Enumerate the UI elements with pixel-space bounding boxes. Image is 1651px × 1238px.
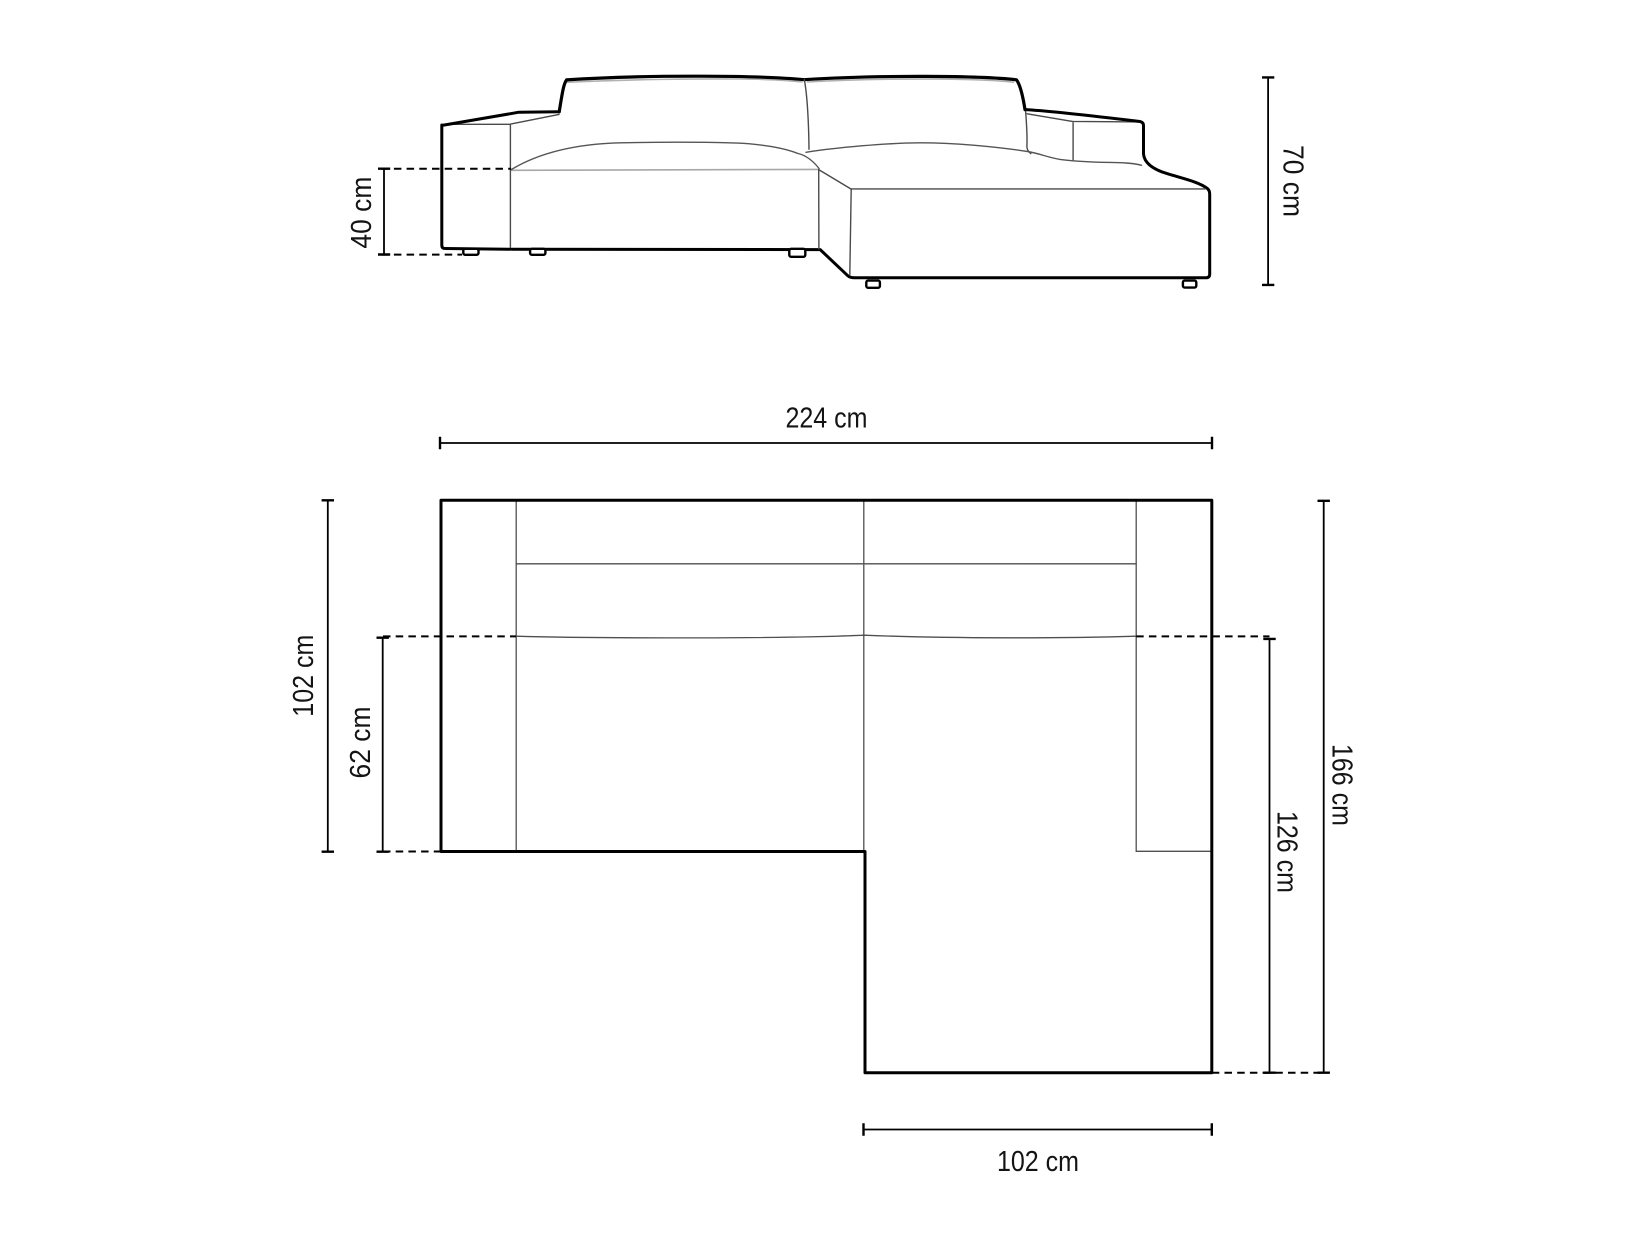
svg-text:70 cm: 70 cm xyxy=(1277,145,1309,217)
svg-text:102 cm: 102 cm xyxy=(997,1146,1079,1178)
svg-text:102 cm: 102 cm xyxy=(288,635,320,717)
svg-text:40 cm: 40 cm xyxy=(346,177,378,249)
svg-text:62 cm: 62 cm xyxy=(345,707,377,779)
svg-text:126 cm: 126 cm xyxy=(1271,811,1303,893)
svg-text:224 cm: 224 cm xyxy=(786,403,868,435)
svg-text:166 cm: 166 cm xyxy=(1326,744,1358,826)
